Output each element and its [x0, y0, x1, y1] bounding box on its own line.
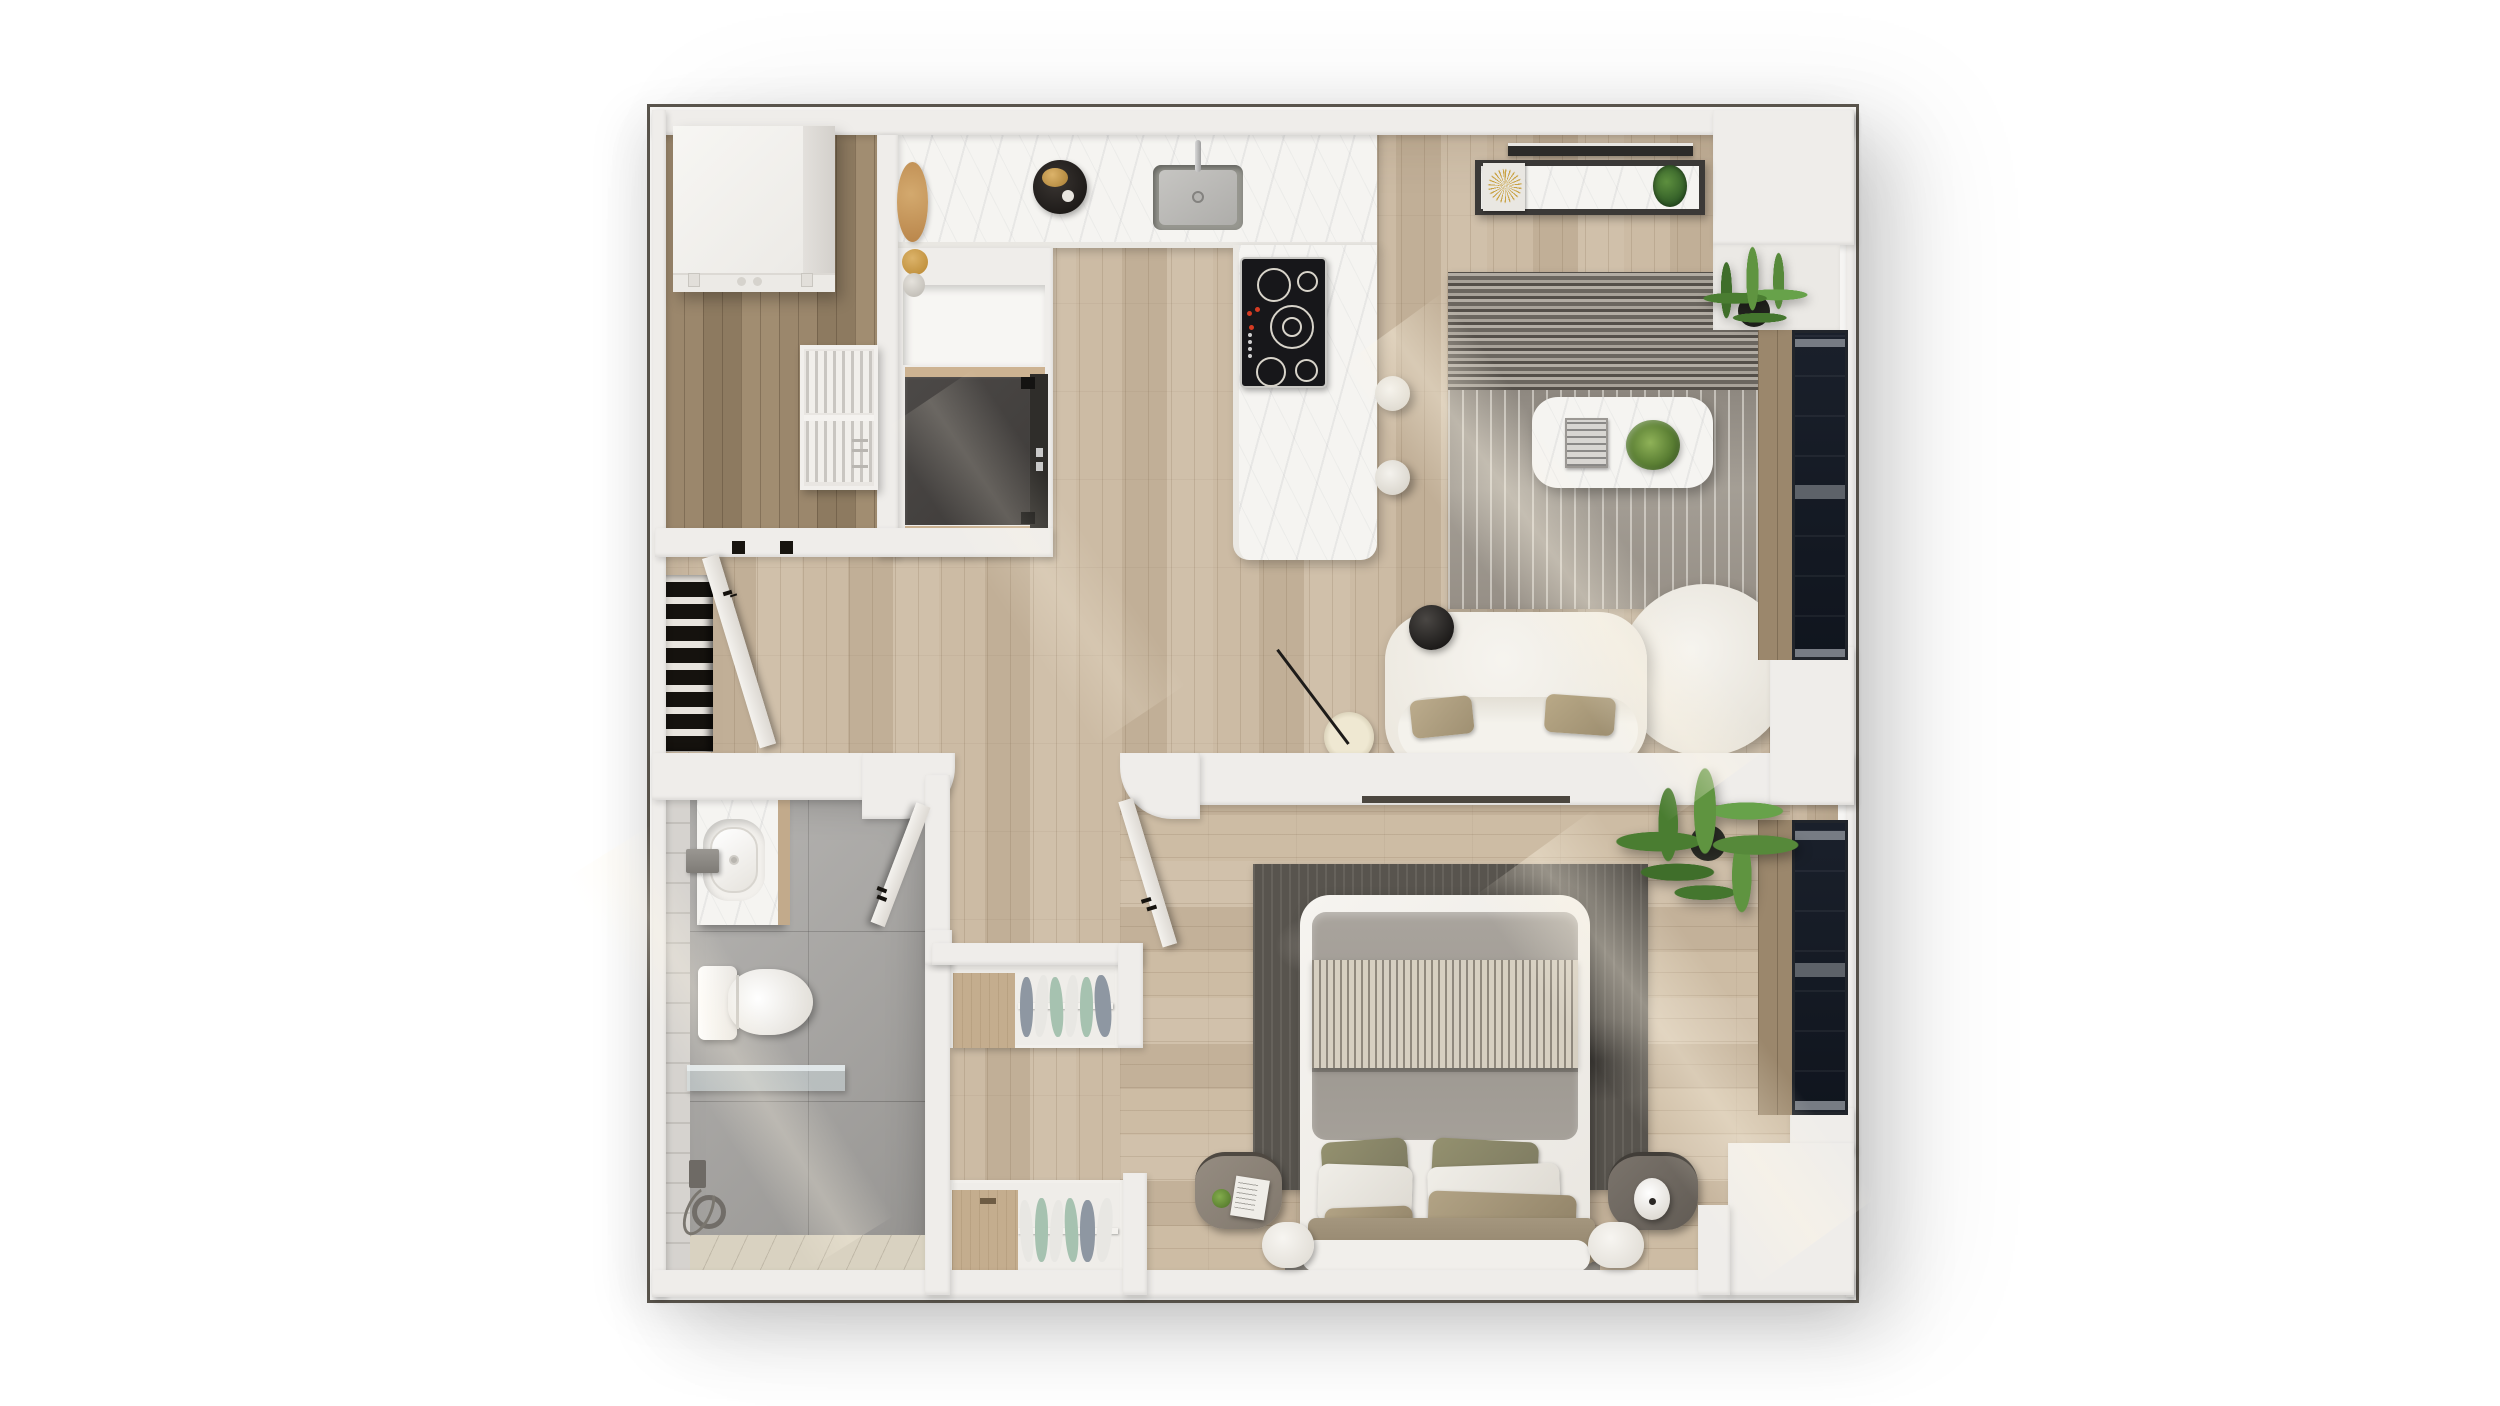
floor-plan — [650, 107, 1856, 1300]
niche-plant-leaves — [1680, 235, 1825, 350]
wall-closet-stub-upper — [1118, 943, 1143, 1048]
wall-top — [652, 110, 1854, 135]
wall-mass-bottom-right — [1728, 1143, 1854, 1295]
balcony-sill-living — [1758, 330, 1794, 660]
niche-plant — [1680, 235, 1825, 350]
wall-left — [652, 110, 666, 1297]
wall-hall-band — [655, 528, 1053, 557]
wall-mass-mid-right — [1770, 647, 1854, 805]
window-bedroom-bar-top — [1795, 831, 1845, 840]
wall-closet-stub-lower — [1123, 1173, 1147, 1295]
render-canvas — [0, 0, 2500, 1406]
wall-bathroom-right — [925, 775, 950, 1295]
wall-corridor-left — [652, 753, 895, 800]
balcony-sill-bedroom — [1758, 820, 1794, 1115]
window-living-bar-mid — [1795, 485, 1845, 499]
window-living-bar-bottom — [1795, 649, 1845, 657]
wood-floor-bedroom — [1120, 805, 1790, 1272]
wall-bottom — [652, 1270, 1854, 1297]
window-bedroom-bar-bottom — [1795, 1101, 1845, 1110]
window-bedroom — [1792, 820, 1848, 1115]
wood-floor-entry — [665, 135, 898, 557]
wall-mass-top-right — [1713, 110, 1854, 245]
sliding-door-groove — [1362, 796, 1570, 803]
window-bedroom-bar-mid — [1795, 963, 1845, 977]
wall-mass-bottom-right-step — [1698, 1205, 1730, 1295]
window-living — [1792, 330, 1848, 660]
wall-closet-top-band — [932, 943, 1143, 965]
door-hinge-marks — [732, 541, 745, 554]
wall-entry-kitchen-divider — [877, 135, 898, 557]
